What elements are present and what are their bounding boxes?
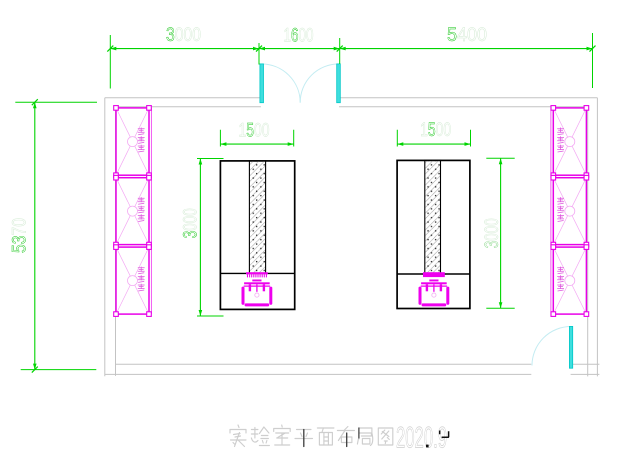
svg-text:2020.9: 2020.9 [396, 422, 447, 455]
svg-text:1600: 1600 [284, 26, 314, 47]
svg-text:1500: 1500 [239, 120, 270, 141]
svg-text:1500: 1500 [420, 120, 451, 141]
svg-text:5370: 5370 [10, 218, 31, 253]
svg-text:3000: 3000 [180, 208, 201, 238]
svg-text:5400: 5400 [447, 25, 487, 46]
svg-text:3000: 3000 [482, 218, 503, 248]
svg-text:3000: 3000 [166, 25, 201, 46]
